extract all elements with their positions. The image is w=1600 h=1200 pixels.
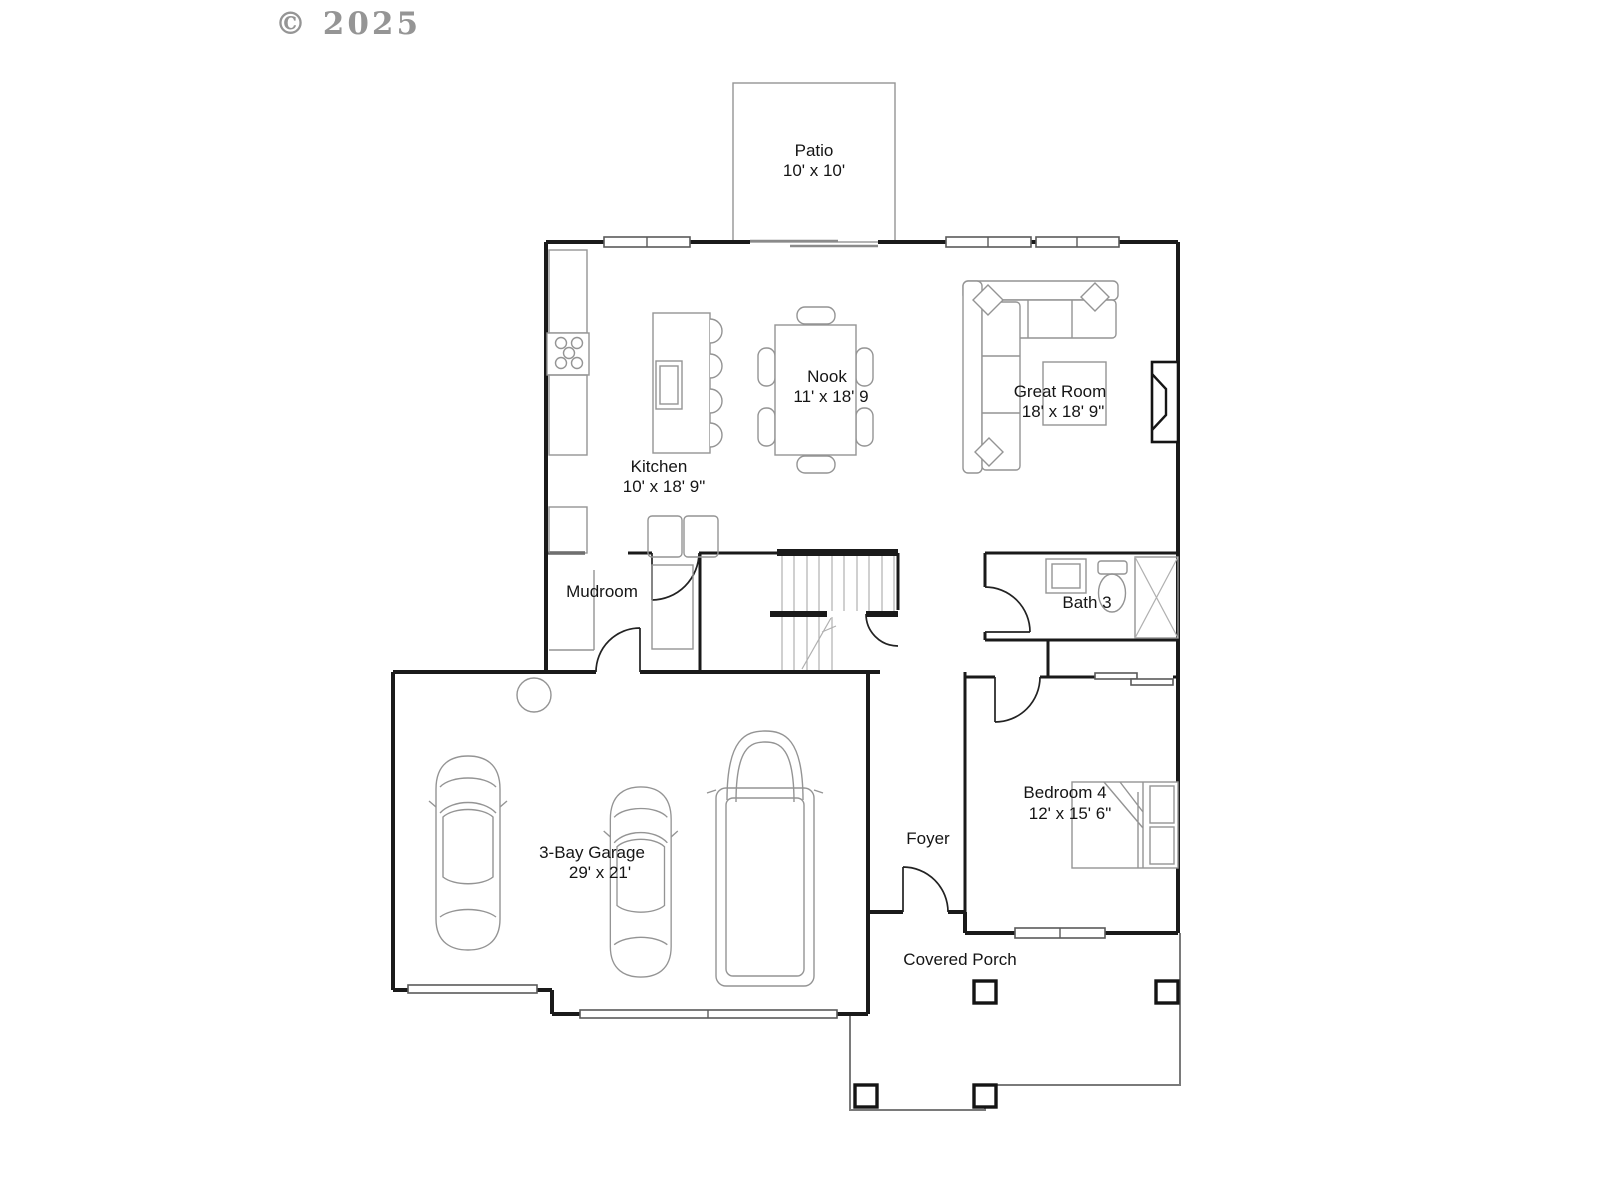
closet-slider-door <box>1131 679 1173 685</box>
patio-dims: 10' x 10' <box>783 161 845 180</box>
dining-chair <box>856 408 873 446</box>
nook-dims: 11' x 18' 9 <box>793 387 868 406</box>
garage-dims: 29' x 21' <box>569 863 631 882</box>
dining-chair <box>797 456 835 473</box>
closet-walls <box>1048 640 1178 677</box>
kitchen-fixtures <box>547 250 722 557</box>
patio-label: Patio <box>795 141 834 160</box>
copyright-watermark: © 2025 <box>275 6 421 42</box>
rv-icon <box>707 731 823 986</box>
vanity-basin <box>1052 564 1080 588</box>
bedroom4-label: Bedroom 4 <box>1023 783 1106 802</box>
kitchen-dims: 10' x 18' 9" <box>623 477 705 496</box>
kitchen-counter <box>549 250 587 333</box>
shower-x-lines <box>1135 557 1178 638</box>
garage-door-single <box>408 985 537 993</box>
kitchen-label: Kitchen <box>631 457 688 476</box>
great-room-furniture <box>963 281 1178 473</box>
closet-slider-door <box>1095 673 1137 679</box>
understair-closet-door <box>866 614 898 646</box>
bedroom4-dims: 12' x 15' 6" <box>1029 804 1111 823</box>
mudroom-lockers <box>652 565 693 649</box>
stair-rail-mid <box>770 611 827 617</box>
garage-entry-door <box>596 628 640 672</box>
dining-chair <box>856 348 873 386</box>
dining-chair <box>758 348 775 386</box>
bar-stool <box>710 354 722 378</box>
floor-plan-canvas: © 2025 Patio 10' x 10' Kitchen 10' x 18'… <box>0 0 1600 1200</box>
bar-stool <box>710 423 722 447</box>
dining-chair <box>758 408 775 446</box>
garage-label: 3-Bay Garage <box>539 843 645 862</box>
bar-stool <box>710 319 722 343</box>
kitchen-counter <box>549 375 587 455</box>
porch-post <box>974 981 996 1003</box>
sofa-back <box>963 281 982 473</box>
great-room-dims: 18' x 18' 9" <box>1022 402 1104 421</box>
water-heater-icon <box>517 678 551 712</box>
porch-post <box>1156 981 1178 1003</box>
bedroom4-door <box>995 677 1040 722</box>
stair-rail-mid <box>866 611 898 617</box>
bath3-door <box>985 587 1030 632</box>
great-room-label: Great Room <box>1014 382 1107 401</box>
garage-contents <box>429 678 823 986</box>
bath3-label: Bath 3 <box>1062 593 1111 612</box>
mudroom-door <box>652 553 699 600</box>
porch-post <box>855 1085 877 1107</box>
bar-stool <box>710 389 722 413</box>
stair-rail-top <box>777 549 898 556</box>
nook-label: Nook <box>807 367 847 386</box>
stove-icon <box>547 333 589 375</box>
stair-treads-upper <box>782 556 894 611</box>
car-icon <box>604 787 678 977</box>
front-door <box>903 867 948 912</box>
porch-post <box>974 1085 996 1107</box>
room-labels: © 2025 Patio 10' x 10' Kitchen 10' x 18'… <box>275 6 1112 969</box>
dryer-icon <box>684 516 718 557</box>
dining-chair <box>797 307 835 324</box>
mudroom-fixtures <box>549 565 693 650</box>
foyer-label: Foyer <box>906 829 950 848</box>
car-icon <box>429 756 507 950</box>
doors <box>596 553 1040 912</box>
stair-treads-lower <box>782 617 832 670</box>
covered-porch-label: Covered Porch <box>903 950 1016 969</box>
stairs <box>770 549 898 670</box>
refrigerator-icon <box>549 507 587 553</box>
washer-icon <box>648 516 682 557</box>
mudroom-label: Mudroom <box>566 582 638 601</box>
floor-plan-page: © 2025 Patio 10' x 10' Kitchen 10' x 18'… <box>0 0 1600 1200</box>
toilet-tank <box>1098 561 1127 574</box>
